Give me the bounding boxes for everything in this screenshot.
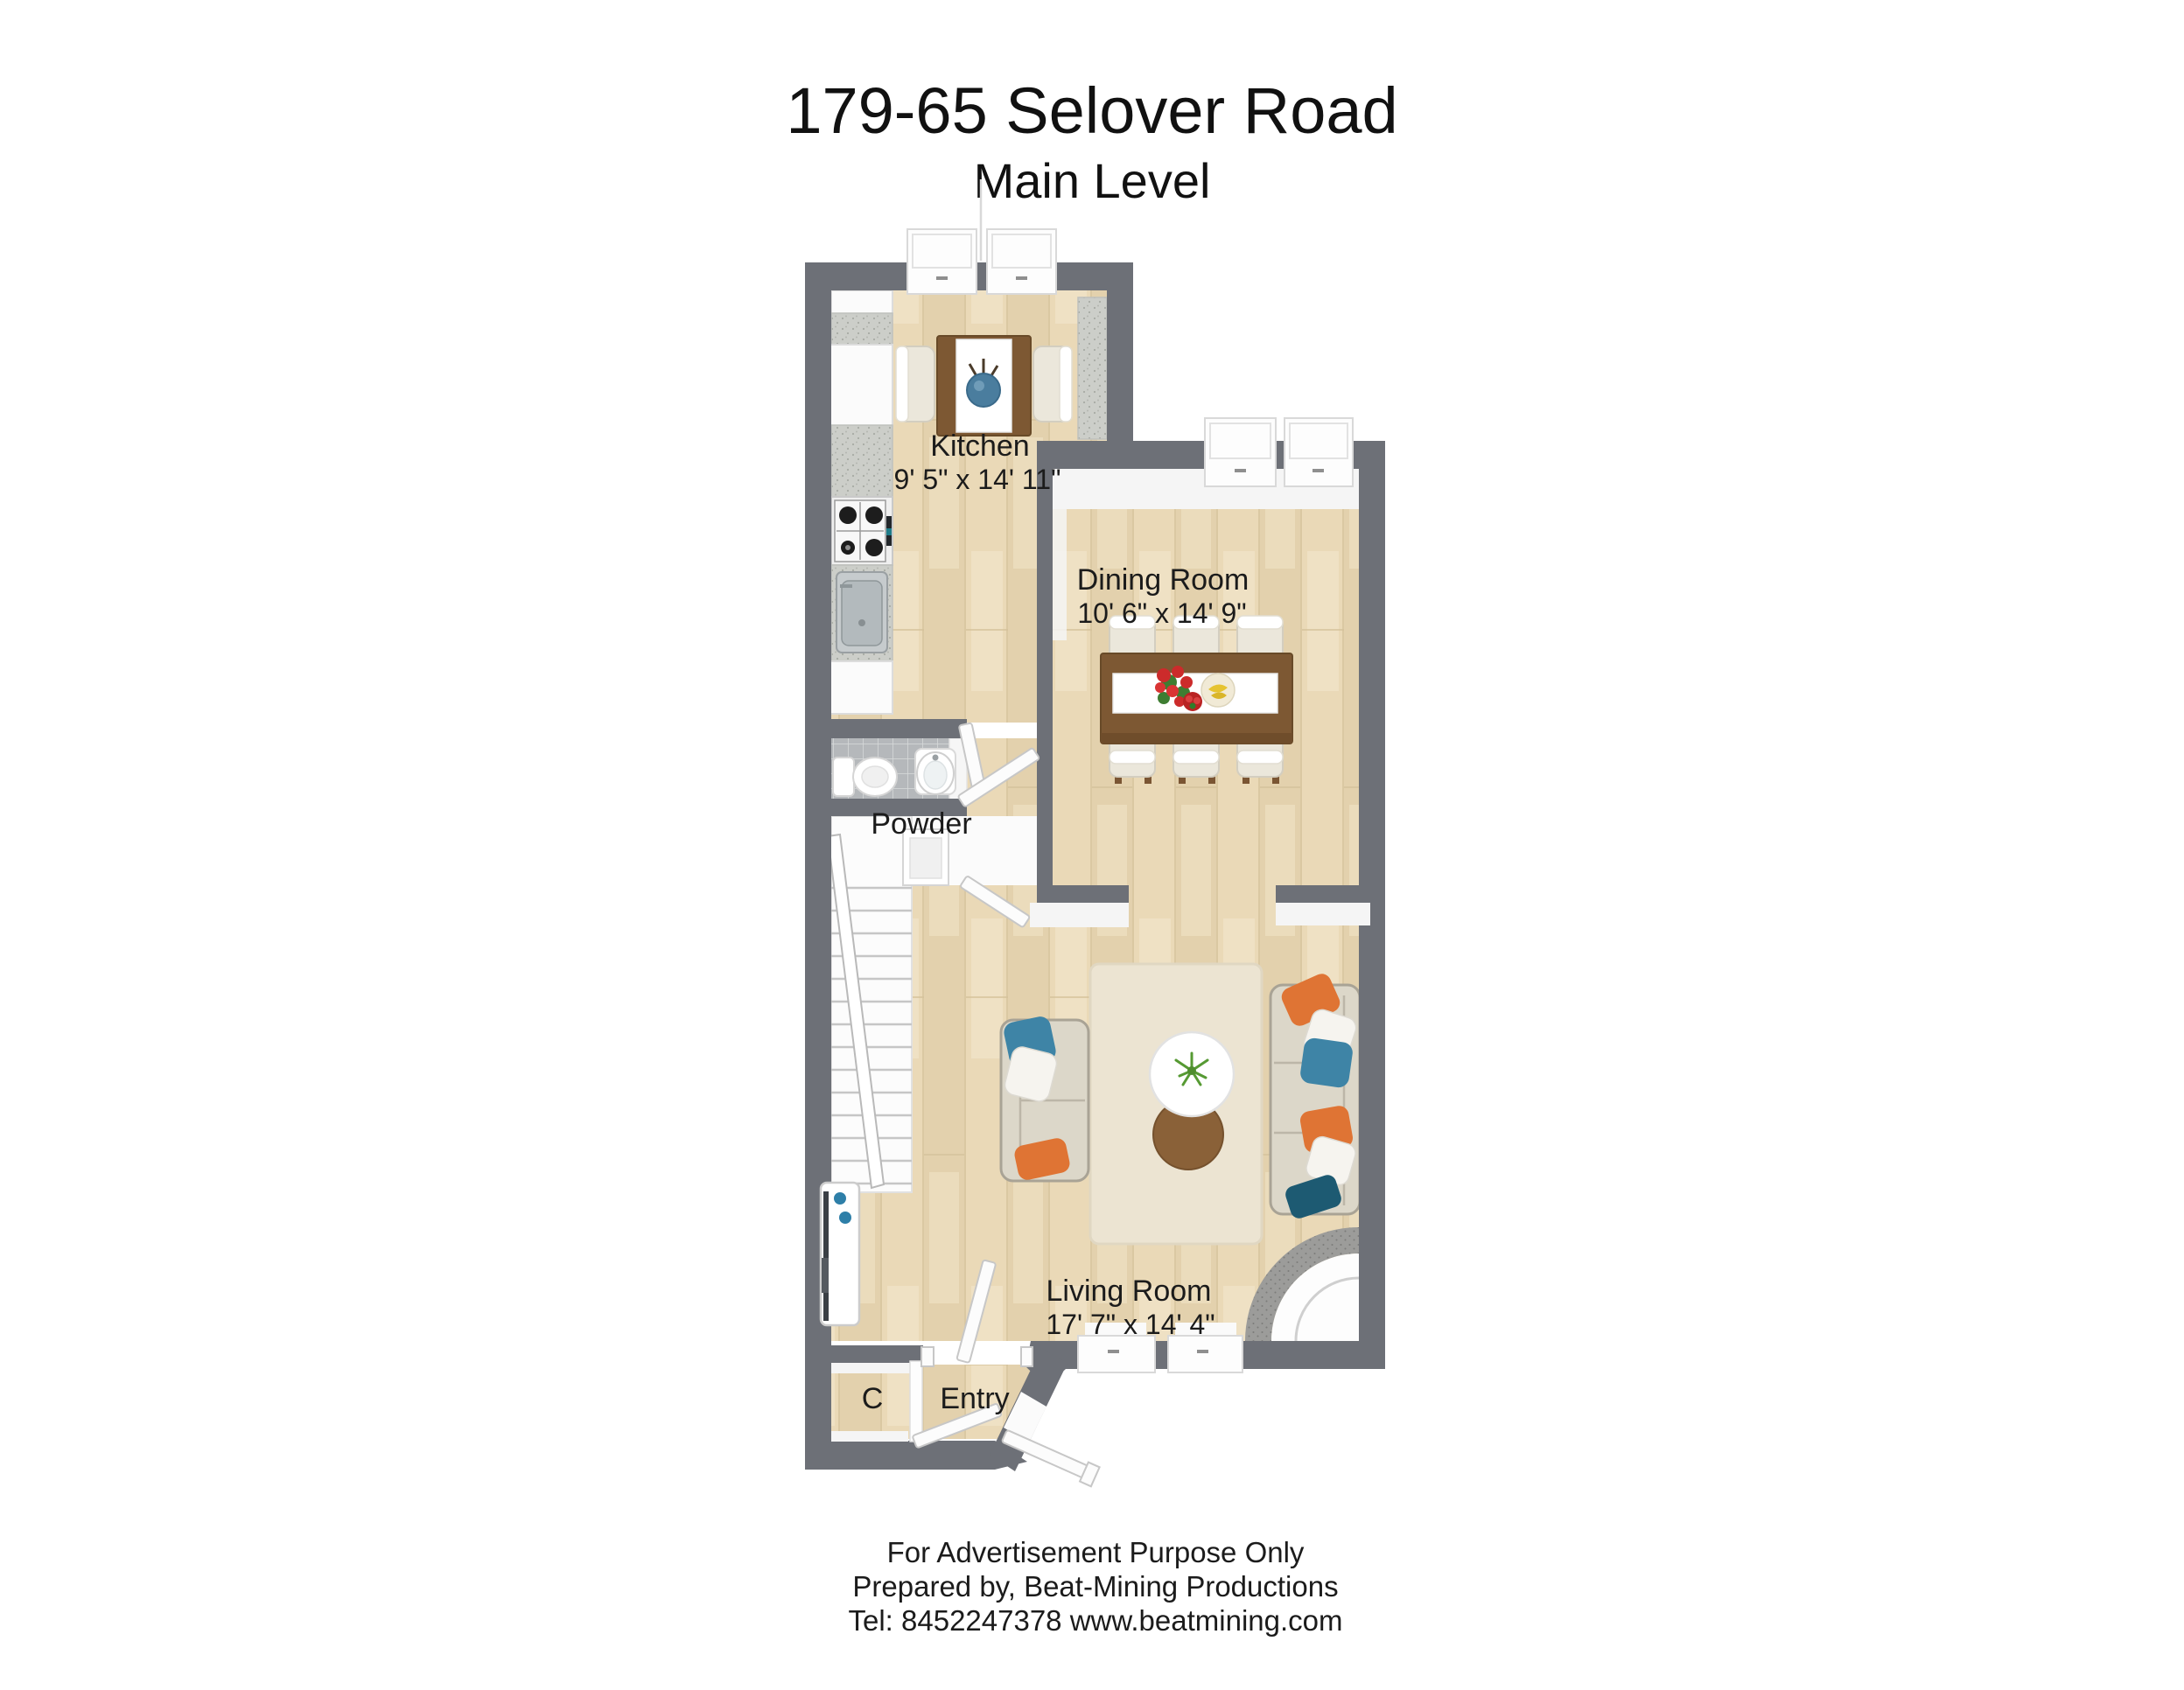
kitchen-sink xyxy=(831,565,892,663)
dining-window-2 xyxy=(1284,418,1353,486)
footer: For Advertisement Purpose Only Prepared … xyxy=(848,1536,1342,1637)
sofa-left xyxy=(1001,1015,1088,1182)
floor-plan-page: 179-65 Selover Road Main Level xyxy=(0,0,2184,1690)
radiator-unit xyxy=(821,1183,859,1325)
stove xyxy=(831,497,892,565)
footer-line-1: For Advertisement Purpose Only xyxy=(887,1536,1305,1568)
wall-entry-bottom xyxy=(805,1441,995,1470)
counter-upper xyxy=(831,313,892,346)
page-title-level: Main Level xyxy=(974,153,1211,208)
wall-entry-top xyxy=(805,1345,923,1365)
wall-interior-vertical xyxy=(1037,469,1053,901)
wall-dining-living-right xyxy=(1276,885,1385,903)
toilet xyxy=(833,758,897,796)
powder-room-label: Powder xyxy=(871,807,971,841)
counter-mid xyxy=(831,425,892,497)
sofa-right xyxy=(1270,971,1360,1221)
entry-door-jamb-right xyxy=(1021,1347,1032,1366)
wall-kitchen-right xyxy=(1107,262,1133,469)
footer-line-2: Prepared by, Beat-Mining Productions xyxy=(852,1570,1338,1603)
counter-right-strip xyxy=(1078,297,1107,439)
kitchen-window-1 xyxy=(907,229,976,294)
counter-top xyxy=(831,290,892,315)
floor-plan-image: 179-65 Selover Road Main Level xyxy=(0,0,2184,1690)
kitchen-label: Kitchen xyxy=(930,429,1029,463)
cabinet-lower xyxy=(829,661,892,714)
page-title-address: 179-65 Selover Road xyxy=(786,74,1397,147)
pillow-blue xyxy=(1299,1037,1354,1088)
entry-label: Entry xyxy=(940,1382,1009,1415)
powder-sink xyxy=(915,749,955,794)
dining-window-1 xyxy=(1205,418,1276,486)
dining-room-label: Dining Room xyxy=(1077,563,1249,597)
closet-label: C xyxy=(862,1382,884,1415)
entry-door-jamb-left xyxy=(921,1347,934,1366)
banana-plate xyxy=(1201,674,1235,707)
wall-powder-top xyxy=(805,719,967,738)
kitchen-dimensions: 9' 5" x 14' 11" xyxy=(894,464,1061,495)
living-room-dimensions: 17' 7" x 14' 4" xyxy=(1046,1309,1214,1340)
living-room-label: Living Room xyxy=(1046,1274,1212,1308)
kitchen-table-set xyxy=(896,336,1072,436)
kitchen-window-2 xyxy=(987,229,1056,294)
dining-room-dimensions: 10' 6" x 14' 9" xyxy=(1077,597,1246,629)
fridge xyxy=(829,345,892,427)
apple-bowl xyxy=(1183,692,1202,711)
wall-dining-living-left xyxy=(1037,885,1129,903)
dining-furniture xyxy=(1101,616,1292,784)
closet-divider xyxy=(910,1361,922,1442)
dining-table xyxy=(1101,653,1292,744)
footer-line-3: Tel: 8452247378 www.beatmining.com xyxy=(848,1604,1342,1637)
